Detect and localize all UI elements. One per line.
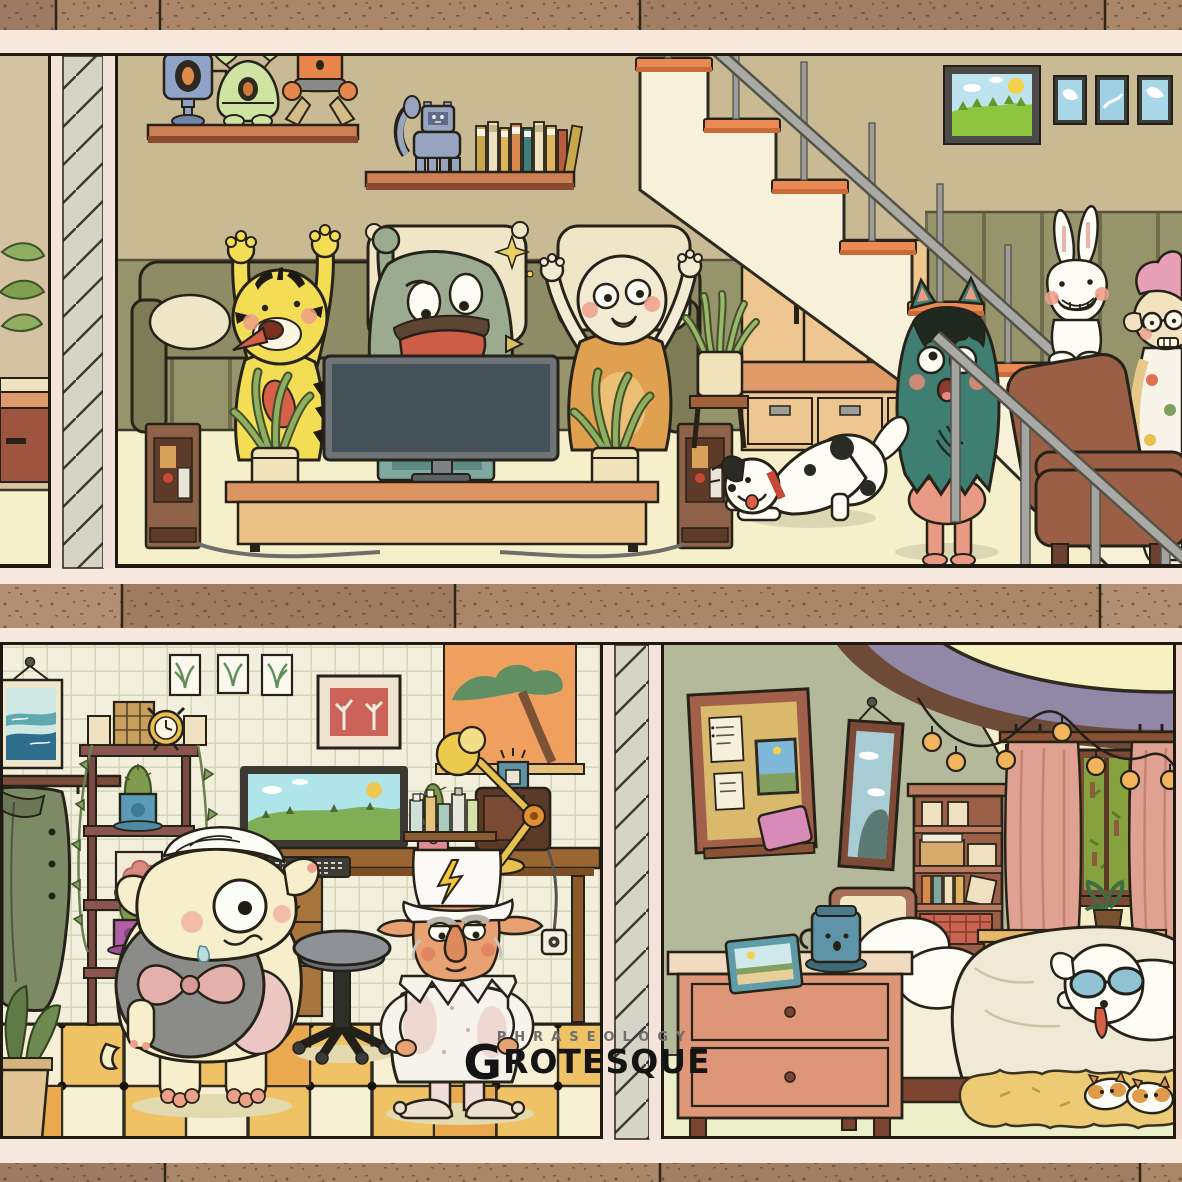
bottom-slab [0,1136,1182,1182]
botanical-prints [170,655,292,695]
living-room [0,0,1182,570]
landscape-painting [944,66,1040,144]
books-row [476,122,582,175]
upper-column [48,56,118,568]
one-eye-shadow [132,1094,292,1118]
cork-board [688,689,816,859]
fuzzy-rug [960,1070,1182,1128]
left-sliver-room [0,56,50,568]
wall-mirror [839,698,903,870]
photo-frame [725,934,802,993]
small-blue-frames [1054,76,1172,124]
curtain-rod [1000,732,1182,742]
power-outlet [542,930,566,954]
desk-leg [572,876,584,1022]
pinned-note [709,716,743,762]
wall-shelf-edge [148,136,358,143]
house-cutaway-scene: PHRASEOLOGY GROTESQUE [0,0,1182,1182]
house-cutaway-illustration [0,0,1182,1182]
media-console [226,482,658,552]
study-room [0,644,600,1139]
lower-column [600,645,664,1139]
tower-speaker-left [146,424,200,548]
mid-slab [0,564,1182,645]
red-tree-art [318,676,400,748]
top-slab [0,0,1182,56]
wall-shelf-edge-2 [366,183,574,190]
sliver-cabinet [0,378,50,482]
